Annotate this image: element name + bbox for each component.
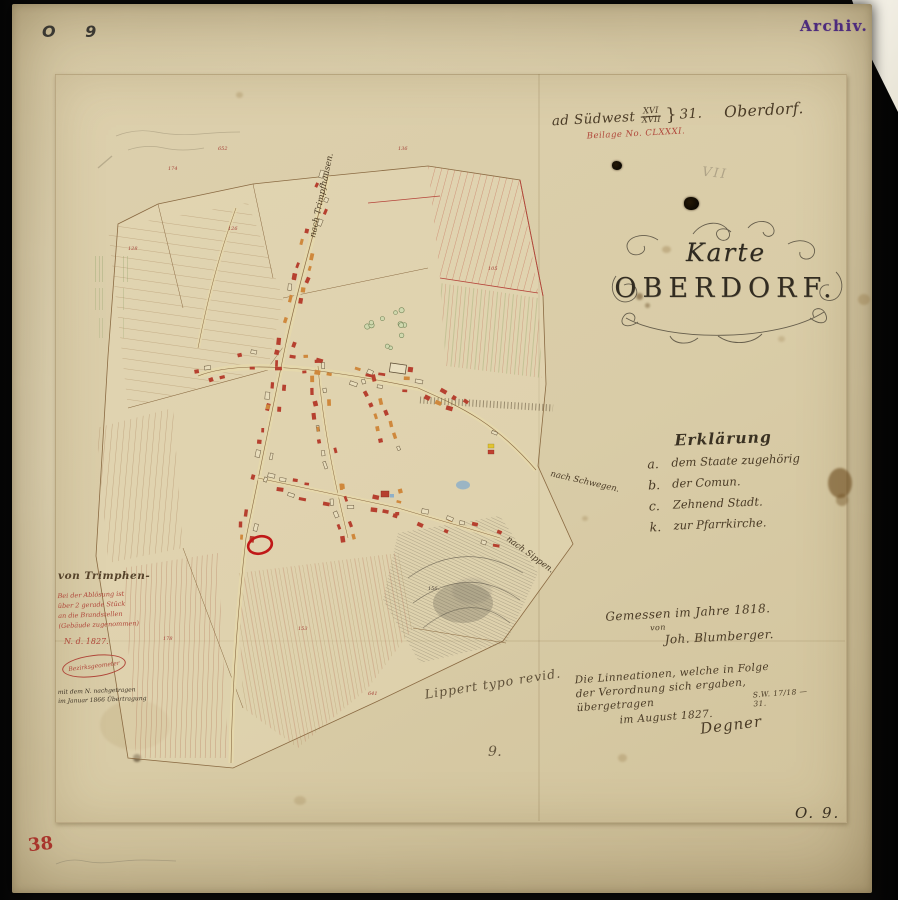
legend-label: der Comun. (672, 474, 741, 491)
corner-mark-bottom-left: 38 (27, 833, 54, 857)
legend-label: Zehnend Stadt. (673, 495, 763, 513)
margin-heading: von Trimphen- (58, 570, 176, 582)
stain (236, 92, 243, 98)
svg-text:156.: 156. (428, 586, 440, 592)
scanned-map-photo: nach Trimpfhausen. nach Schwegen. nach S… (0, 0, 898, 900)
ink-blot (684, 197, 699, 210)
header-prefix: ad Südwest (551, 109, 635, 129)
svg-text:641: 641 (368, 691, 378, 697)
legend-item: c. Zehnend Stadt. (649, 492, 849, 514)
oval-signature-stamp: Bezirksgeometer (61, 651, 127, 681)
svg-text:128: 128 (128, 246, 138, 252)
header-place: Oberdorf. (724, 99, 804, 121)
legend-label: dem Staate zugehörig (671, 451, 800, 470)
corner-mark-top-left: O 9 (42, 22, 108, 41)
svg-text:126: 126 (228, 226, 238, 232)
margin-black-note: mit dem N. nachgetragen im Januar 1866 Ü… (58, 684, 177, 706)
pencil-scribble-faint (52, 852, 182, 872)
road-label-schwegen: nach Schwegen. (549, 469, 620, 495)
pond-water (456, 481, 470, 490)
legend-key: b. (648, 477, 673, 493)
title-line-oberdorf: OBERDORF. (598, 273, 854, 304)
legend-item: b. der Comun. (648, 471, 848, 493)
margin-red-note: Bei der Ablösung ist über 2 gerade Stück… (57, 587, 176, 631)
margin-annotations: von Trimphen- Bei der Ablösung ist über … (58, 570, 176, 704)
archive-stamp: Archiv. (800, 17, 868, 35)
svg-text:105: 105 (488, 266, 498, 272)
stain (858, 294, 870, 305)
legend-key: c. (649, 498, 674, 514)
stamp-text: Bezirksgeometer (68, 660, 120, 673)
svg-text:136: 136 (398, 146, 408, 152)
svg-text:652: 652 (218, 146, 228, 152)
svg-text:153: 153 (298, 626, 308, 632)
corner-mark-bottom-right: O. 9. (795, 804, 840, 822)
legend: Erklärung a. dem Staate zugehörig b. der… (646, 425, 849, 535)
title-line-karte: Karte (598, 238, 854, 267)
corner-mark-center-bottom: 9. (488, 744, 502, 760)
header-number: 31. (679, 105, 702, 122)
map-title-cartouche: Karte OBERDORF. (598, 214, 854, 350)
faint-numeral: VII (701, 165, 728, 183)
margin-red-date: N. d. 1827. (64, 637, 176, 646)
svg-text:174: 174 (168, 166, 178, 172)
header-brace: } (665, 105, 677, 126)
legend-key: k. (649, 519, 674, 535)
legend-key: a. (647, 456, 672, 472)
header-fraction: XVI XVII (641, 106, 662, 126)
legend-item: a. dem Staate zugehörig (647, 450, 847, 472)
fraction-bottom: XVII (641, 115, 660, 126)
